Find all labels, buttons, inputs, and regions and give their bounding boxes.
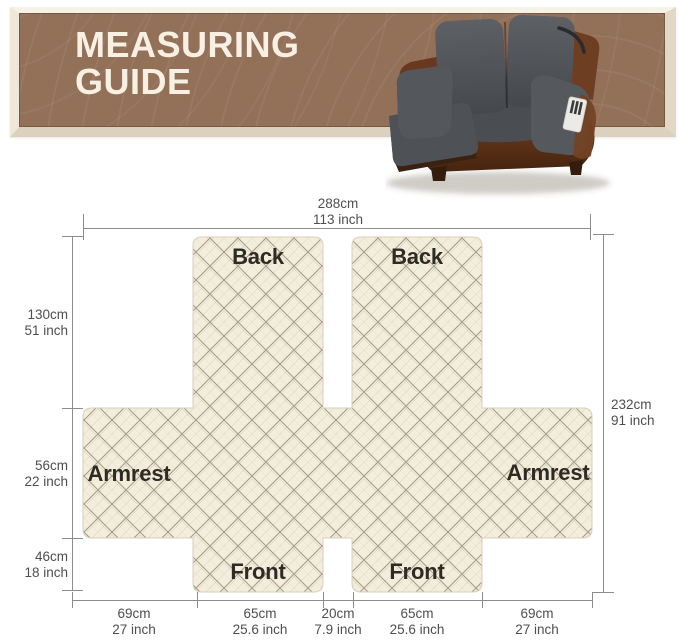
measure-top-cm: 288cm — [313, 196, 363, 212]
armrest-left-label: Armrest — [88, 461, 171, 487]
back-left-label: Back — [232, 244, 284, 270]
measure-seat-depth-inch: 22 inch — [0, 474, 68, 490]
measure-bottom-gap: 20cm 7.9 inch — [314, 606, 361, 637]
measure-back-height-inch: 51 inch — [0, 323, 68, 339]
measure-bottom-4-cm: 65cm — [390, 606, 445, 622]
front-right-label: Front — [389, 559, 444, 585]
measure-bottom-armrest-right: 69cm 27 inch — [515, 606, 559, 637]
measure-bottom-3-inch: 7.9 inch — [314, 622, 361, 638]
measure-bottom-3-cm: 20cm — [314, 606, 361, 622]
measure-total-length-cm: 232cm — [611, 397, 655, 413]
armrest-right-label: Armrest — [507, 460, 590, 486]
measure-total-length: 232cm 91 inch — [611, 397, 655, 428]
measure-back-height-cm: 130cm — [0, 307, 68, 323]
measure-bottom-1-cm: 69cm — [112, 606, 156, 622]
sofa-foot-left — [431, 166, 447, 181]
measure-seat-depth-cm: 56cm — [0, 458, 68, 474]
measure-bottom-armrest-left: 69cm 27 inch — [112, 606, 156, 637]
measure-bottom-seat-left: 65cm 25.6 inch — [233, 606, 288, 637]
measure-seat-depth: 56cm 22 inch — [0, 458, 68, 489]
measure-bottom-2-inch: 25.6 inch — [233, 622, 288, 638]
measure-top-width: 288cm 113 inch — [313, 196, 363, 227]
measure-bottom-5-inch: 27 inch — [515, 622, 559, 638]
page: MEASURING GUIDE — [0, 0, 679, 640]
measure-bottom-5-cm: 69cm — [515, 606, 559, 622]
sofa-shadow — [386, 172, 610, 194]
product-photo — [385, 0, 625, 200]
measure-bottom-1-inch: 27 inch — [112, 622, 156, 638]
front-left-label: Front — [230, 559, 285, 585]
back-right-label: Back — [391, 244, 443, 270]
measure-bottom-4-inch: 25.6 inch — [390, 622, 445, 638]
measure-front-height: 46cm 18 inch — [0, 549, 68, 580]
sofa-foot-right — [569, 160, 583, 175]
measure-back-height: 130cm 51 inch — [0, 307, 68, 338]
measure-front-height-inch: 18 inch — [0, 565, 68, 581]
measure-top-inch: 113 inch — [313, 212, 363, 228]
measure-total-length-inch: 91 inch — [611, 413, 655, 429]
measure-front-height-cm: 46cm — [0, 549, 68, 565]
measure-bottom-2-cm: 65cm — [233, 606, 288, 622]
cover-shape — [83, 237, 592, 592]
measure-bottom-seat-right: 65cm 25.6 inch — [390, 606, 445, 637]
